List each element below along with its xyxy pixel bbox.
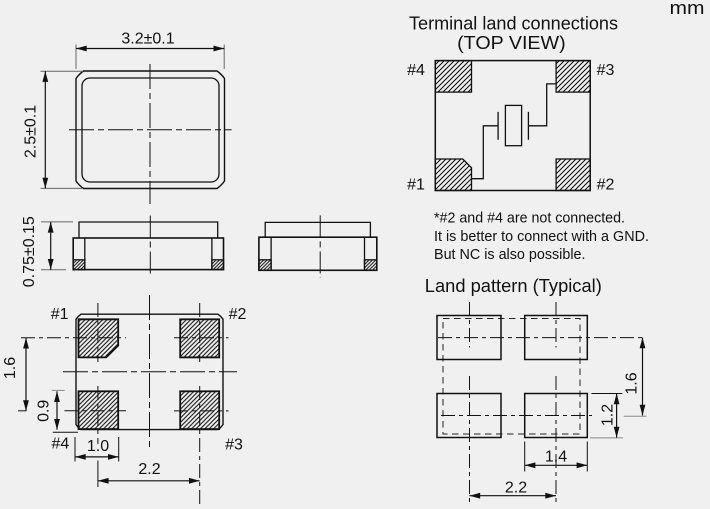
svg-text:#1: #1 <box>51 306 69 323</box>
svg-text:1.4: 1.4 <box>545 449 567 466</box>
svg-text:2.5±0.1: 2.5±0.1 <box>23 105 40 158</box>
svg-text:1.2: 1.2 <box>600 404 617 426</box>
svg-text:1.6: 1.6 <box>2 357 19 379</box>
svg-text:#3: #3 <box>597 62 615 79</box>
svg-text:#2: #2 <box>229 306 247 323</box>
svg-text:Terminal land connections: Terminal land connections <box>409 14 618 34</box>
svg-text:#1: #1 <box>407 177 425 194</box>
svg-text:*#2 and #4 are not connected.: *#2 and #4 are not connected. <box>434 210 625 227</box>
svg-text:mm: mm <box>670 0 705 18</box>
svg-text:(TOP VIEW): (TOP VIEW) <box>457 33 566 53</box>
svg-text:#3: #3 <box>225 437 243 454</box>
svg-text:1.6: 1.6 <box>624 372 641 394</box>
svg-text:#4: #4 <box>52 436 70 453</box>
svg-text:0.75±0.15: 0.75±0.15 <box>21 216 38 287</box>
svg-text:2.2: 2.2 <box>505 480 527 497</box>
svg-text:3.2±0.1: 3.2±0.1 <box>121 31 174 48</box>
svg-text:0.9: 0.9 <box>36 400 53 422</box>
svg-text:#2: #2 <box>597 177 615 194</box>
svg-text:Land pattern (Typical): Land pattern (Typical) <box>425 276 602 296</box>
svg-text:It is better to connect with a: It is better to connect with a GND. <box>434 228 649 245</box>
svg-text:1.0: 1.0 <box>87 438 109 455</box>
svg-text:But NC is also possible.: But NC is also possible. <box>434 246 586 263</box>
svg-text:2.2: 2.2 <box>138 461 160 478</box>
svg-text:#4: #4 <box>407 62 425 79</box>
